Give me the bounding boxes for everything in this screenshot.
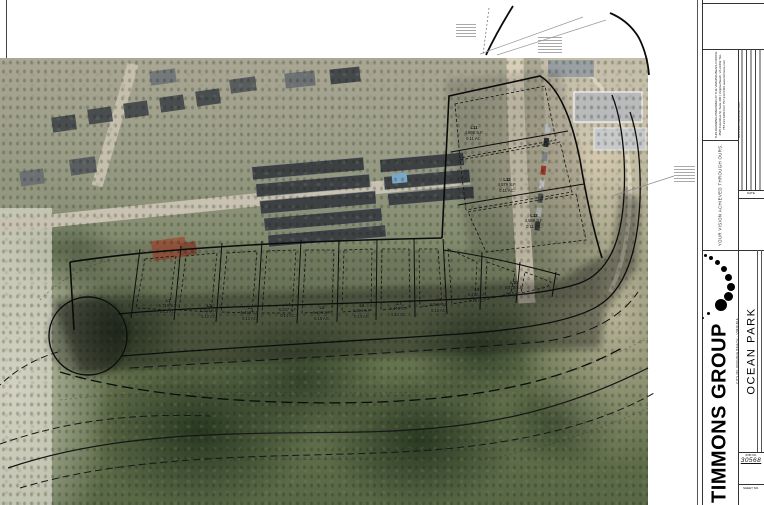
lot-label: L66,294 S.F.0.14 AC.: [353, 303, 372, 319]
lot-label: L46,037 S.F.0.14 AC.: [279, 302, 298, 318]
project-title: CITY OF VIRGINIA BEACH - VIRGINIA OCEAN …: [738, 250, 757, 452]
lot-labels: L15,719 S.F.0.13 AC.L25,084 S.F.0.12 AC.…: [0, 0, 764, 505]
title-block: THIS DRAWING PREPARED AT THE VIRGINIA BE…: [697, 0, 764, 505]
project-location: CITY OF VIRGINIA BEACH - VIRGINIA: [736, 253, 740, 449]
prepared-note: THIS DRAWING PREPARED AT THE VIRGINIA BE…: [702, 49, 738, 140]
job-number-box: JOB NO. 30568: [738, 453, 764, 464]
lot-label: L124,579 S.F.0.11 AC.: [498, 177, 517, 193]
sheet-number-label: SHEET NO.: [738, 486, 764, 490]
lot-label: L134,588 S.F.0.11 AC.: [525, 213, 544, 229]
lot-label: L76,472 S.F.0.14 AC.: [390, 301, 409, 317]
plan-sheet: L15,719 S.F.0.13 AC.L25,084 S.F.0.12 AC.…: [0, 0, 764, 505]
lot-label: L86,585 S.F.0.15 AC.: [430, 297, 449, 313]
revision-header: REVISION DESCRIPTION: [735, 49, 743, 190]
date-label: DATE: [738, 191, 764, 195]
lot-label: L25,084 S.F.0.12 AC.: [200, 303, 219, 319]
job-number-value: 30568: [738, 457, 764, 464]
lot-label: L114,896 S.F.0.11 AC.: [465, 125, 484, 141]
lot-label: L35,449 S.F.0.12 AC.: [241, 305, 260, 321]
lot-label: L15,719 S.F.0.13 AC.: [159, 298, 178, 314]
lot-label: L96,442 S.F.0.15 AC.: [468, 287, 487, 303]
project-name: OCEAN PARK: [745, 307, 757, 394]
company-tagline: YOUR VISION ACHIEVED THROUGH OURS.: [702, 140, 738, 250]
lot-label: L56,446 S.F.0.15 AC.: [313, 305, 332, 321]
lot-label: L106,473 S.F.0.15 AC.: [505, 280, 524, 296]
